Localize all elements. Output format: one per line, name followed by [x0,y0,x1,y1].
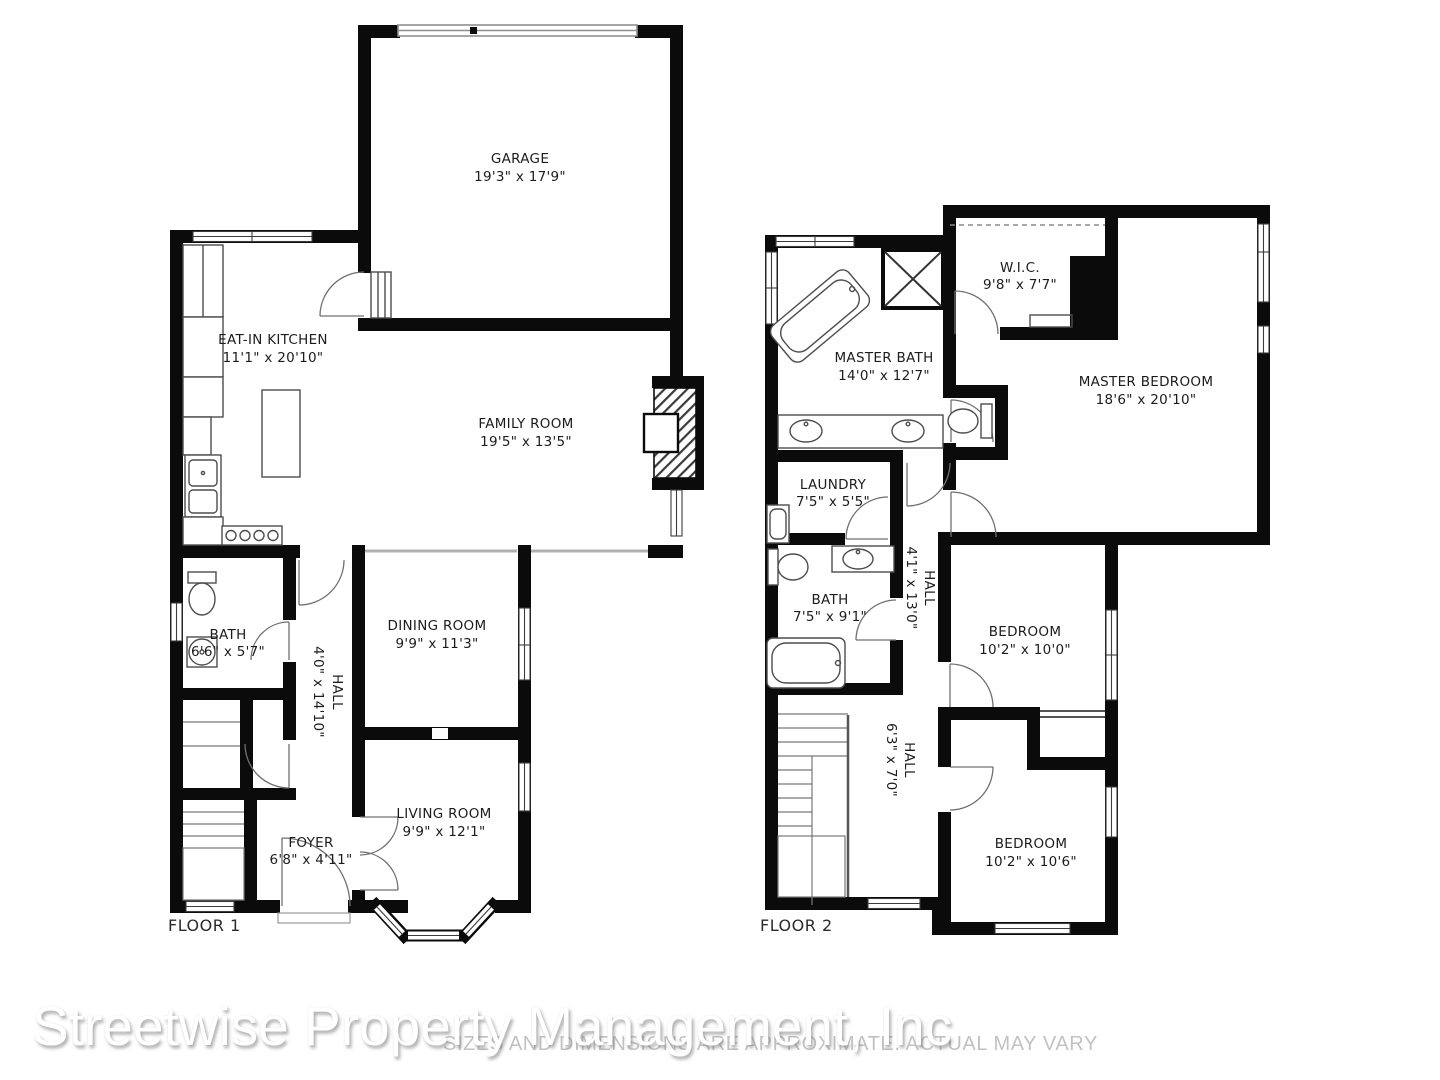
room-label-bath1: BATH 6'6" x 5'7" [191,627,265,660]
svg-text:14'0" x 12'7": 14'0" x 12'7" [838,368,930,384]
bath2-toilet-icon [768,549,808,585]
svg-text:19'3" x 17'9": 19'3" x 17'9" [474,169,566,185]
floor1-doors [245,272,398,923]
svg-text:BATH: BATH [209,627,246,643]
svg-text:HALL: HALL [901,742,917,778]
svg-text:MASTER BATH: MASTER BATH [834,350,933,366]
toilet-icon [188,572,216,615]
shower-icon [883,250,943,308]
svg-text:11'1" x 20'10": 11'1" x 20'10" [223,350,324,366]
svg-text:9'9" x 12'1": 9'9" x 12'1" [403,824,486,840]
kitchen-counter-icon [183,245,223,545]
room-label-wic: W.I.C. 9'8" x 7'7" [983,260,1057,293]
garage-steps-icon [371,272,391,318]
floor-plan-drawing: GARAGE 19'3" x 17'9" EAT-IN KITCHEN 11'1… [0,0,1440,1080]
svg-text:FAMILY ROOM: FAMILY ROOM [478,416,573,432]
floor-plan-page: SIZES AND DIMENSIONS ARE APPROXIMATE. AC… [0,0,1440,1080]
room-label-bedroom-front: BEDROOM 10'2" x 10'0" [979,624,1071,658]
svg-text:9'8" x 7'7": 9'8" x 7'7" [983,277,1057,293]
svg-text:FOYER: FOYER [288,835,333,851]
svg-text:4'1" x 13'0": 4'1" x 13'0" [903,547,919,630]
svg-text:LIVING ROOM: LIVING ROOM [396,806,491,822]
room-label-master-bath: MASTER BATH 14'0" x 12'7" [834,350,933,384]
watermark-company: Streetwise Property Management, Inc [32,994,952,1058]
room-label-bedroom-rear: BEDROOM 10'2" x 10'6" [985,836,1077,870]
svg-text:GARAGE: GARAGE [491,151,549,167]
room-label-bath2: BATH 7'5" x 9'1" [793,592,867,625]
svg-text:LAUNDRY: LAUNDRY [800,477,867,493]
floor1-plan: GARAGE 19'3" x 17'9" EAT-IN KITCHEN 11'1… [168,25,704,940]
svg-text:18'6" x 20'10": 18'6" x 20'10" [1096,392,1197,408]
stairs-up-icon [778,714,848,905]
bath2-sink-icon [832,546,894,572]
kitchen-island-icon [262,390,300,477]
room-label-kitchen: EAT-IN KITCHEN 11'1" x 20'10" [218,332,328,366]
stairs-down-icon [183,812,244,900]
svg-text:W.I.C.: W.I.C. [1000,260,1040,276]
room-label-garage: GARAGE 19'3" x 17'9" [474,151,566,185]
svg-text:9'9" x 11'3": 9'9" x 11'3" [396,636,479,652]
svg-text:DINING ROOM: DINING ROOM [388,618,487,634]
room-label-family: FAMILY ROOM 19'5" x 13'5" [478,416,573,450]
double-vanity-icon [778,415,943,448]
fireplace-icon [644,376,704,490]
floor1-walls [170,25,683,940]
svg-text:HALL: HALL [329,674,345,710]
bath2-tub-icon [767,638,845,688]
svg-text:MASTER BEDROOM: MASTER BEDROOM [1079,374,1214,390]
room-label-dining: DINING ROOM 9'9" x 11'3" [388,618,487,652]
svg-text:BEDROOM: BEDROOM [989,624,1062,640]
room-label-hall1: HALL 4'0" x 14'10" [310,646,345,738]
room-label-laundry: LAUNDRY 7'5" x 5'5" [796,477,870,510]
svg-text:BEDROOM: BEDROOM [995,836,1068,852]
svg-text:6'6" x 5'7": 6'6" x 5'7" [191,644,265,660]
stove-icon [222,526,282,545]
laundry-sink-icon [767,505,789,543]
closet-slider-icon [1040,711,1105,717]
floor1-label: FLOOR 1 [168,916,241,935]
closet-shelves-icon [183,722,240,746]
floor2-plan: MASTER BATH 14'0" x 12'7" W.I.C. 9'8" x … [760,205,1270,935]
svg-text:19'5" x 13'5": 19'5" x 13'5" [480,434,572,450]
svg-text:BATH: BATH [811,592,848,608]
svg-text:6'3" x 7'0": 6'3" x 7'0" [883,723,899,797]
svg-text:6'8" x 4'11": 6'8" x 4'11" [270,852,353,868]
floor2-label: FLOOR 2 [760,916,833,935]
svg-text:10'2" x 10'0": 10'2" x 10'0" [979,642,1071,658]
svg-text:EAT-IN KITCHEN: EAT-IN KITCHEN [218,332,328,348]
svg-text:7'5" x 5'5": 7'5" x 5'5" [796,494,870,510]
svg-text:10'2" x 10'6": 10'2" x 10'6" [985,854,1077,870]
room-label-living: LIVING ROOM 9'9" x 12'1" [396,806,491,840]
svg-text:4'0" x 14'10": 4'0" x 14'10" [310,646,326,738]
room-label-hall-lower: HALL 6'3" x 7'0" [883,723,917,797]
wc-toilet-icon [948,404,992,438]
room-label-hall-upper: HALL 4'1" x 13'0" [903,547,937,630]
room-label-master-bedroom: MASTER BEDROOM 18'6" x 20'10" [1079,374,1214,408]
svg-text:7'5" x 9'1": 7'5" x 9'1" [793,609,867,625]
svg-text:HALL: HALL [921,570,937,606]
